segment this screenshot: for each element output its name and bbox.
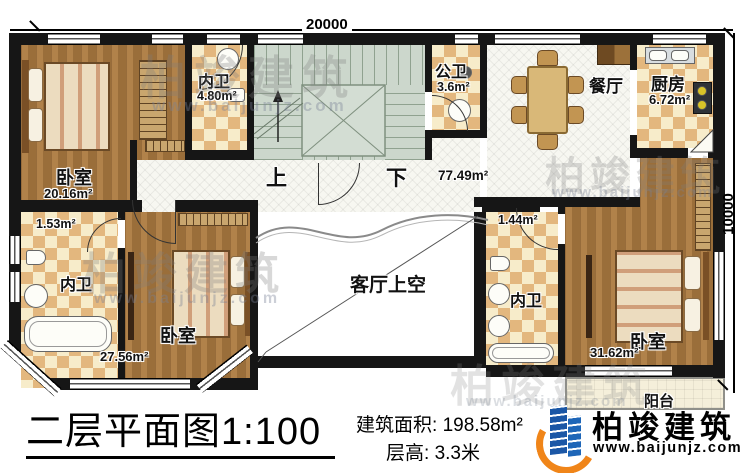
wall-outer-left [9, 33, 21, 352]
bed-bl-pillow [230, 256, 245, 288]
window-top-5 [455, 33, 478, 45]
plan-title: 二层平面图1:100 [26, 400, 321, 455]
dining-table [527, 66, 568, 134]
bath-tl-area: 4.80m² [197, 89, 237, 103]
bedroom-bl-label: 卧室 [160, 322, 196, 348]
dining-chair-l2 [511, 106, 527, 124]
wardrobe-tl-low [145, 140, 185, 152]
window-top-4 [258, 33, 303, 45]
wardrobe-tl [139, 60, 167, 140]
building-area-label: 建筑面积: [356, 415, 437, 436]
dining-chair-l1 [511, 76, 527, 94]
dining-chair-r1 [568, 76, 584, 94]
bed-tl-pillow [28, 68, 43, 102]
window-bottom-bl [70, 378, 190, 390]
bathtub-ml [24, 316, 112, 352]
window-top-3 [207, 33, 240, 45]
tv-stand-br [586, 255, 592, 338]
bath-br-area: 1.44m² [498, 213, 538, 227]
wall-stairs-pubbath-a [425, 33, 432, 92]
wall-bathtl-stairs [247, 33, 254, 160]
bedroom-tl-area: 20.16m² [44, 186, 92, 201]
window-top-7 [653, 33, 706, 45]
bed-br-pillow2 [684, 298, 701, 332]
floor-height-value: 3.3米 [435, 443, 480, 464]
sink-bath-ml [24, 284, 48, 308]
building-area-line: 建筑面积: 198.58m² [356, 410, 523, 437]
window-left-2 [9, 272, 21, 302]
wall-bedtl-bathtl [185, 33, 192, 160]
dimension-right-value: 10000 [720, 179, 738, 249]
bedroom-bl-area: 27.56m² [100, 349, 148, 364]
sink-bath-br [488, 283, 510, 305]
window-top-1 [48, 33, 100, 45]
bath-ml-area: 1.53m² [36, 217, 76, 231]
wall-bathml-b [118, 248, 125, 388]
wall-bathbr-right-a [558, 203, 565, 214]
bath-br-label: 内卫 [510, 287, 542, 311]
bed-bl-pillow2 [230, 294, 245, 326]
wardrobe-bl [178, 213, 248, 226]
floor-height-label: 层高: [386, 443, 429, 464]
window-left-1 [9, 236, 21, 264]
kitchen-area: 6.72m² [649, 92, 690, 107]
dresser-bl [128, 252, 134, 340]
stairs-left-flight [254, 85, 302, 160]
wall-kitchen-bottom-a [630, 148, 688, 158]
window-right-1 [713, 252, 725, 340]
bathtub-br [488, 343, 554, 363]
bath-ml-label: 内卫 [60, 271, 92, 295]
wall-kitchen-bottom-b [708, 148, 713, 158]
stairs-up-label: 上 [266, 162, 287, 192]
wall-void-left [250, 207, 258, 390]
title-underline [26, 456, 335, 459]
wall-hall-bottom-a [9, 200, 142, 212]
floor-height-line: 层高: 3.3米 [386, 438, 480, 465]
dimension-line-top [10, 29, 733, 31]
kitchen-sink-basin [649, 50, 667, 61]
dining-cabinet [597, 42, 632, 65]
public-bath-area: 3.6m² [437, 80, 470, 94]
public-bath-label: 公卫 [435, 58, 467, 82]
sink-bath-br2 [488, 315, 510, 337]
wall-bathtl-bottom [185, 150, 254, 160]
wall-outer-top [9, 33, 725, 45]
kitchen-pass-through [630, 70, 637, 135]
floor-plan-canvas: 卧室 20.16m² 内卫 4.80m² 上 下 77.49m² 公卫 3.6m… [0, 0, 750, 473]
building-area-value: 198.58m² [443, 415, 523, 436]
logo-building-short [568, 415, 581, 457]
logo-building-tall [550, 405, 567, 455]
window-top-6 [495, 33, 580, 45]
hall-area: 77.49m² [438, 168, 488, 183]
brand-website: www.baijunjz.com [593, 440, 742, 456]
stairs-down-label: 下 [386, 162, 407, 192]
window-bottom-br [585, 365, 672, 377]
wall-pubbath-dining [480, 33, 487, 138]
wardrobe-br [695, 163, 711, 251]
dining-chair-r2 [568, 106, 584, 124]
wall-hall-bottom-b [176, 200, 258, 212]
dining-label: 餐厅 [589, 72, 623, 97]
dimension-top-value: 20000 [302, 16, 352, 33]
brand-logo-icon [536, 402, 592, 466]
bedroom-br-area: 31.62m² [590, 345, 638, 360]
toilet-bath-ml [26, 250, 46, 265]
toilet-bath-br [490, 256, 510, 271]
bed-br-headboard [703, 252, 709, 340]
bed-br-pillow [684, 256, 701, 290]
dining-chair-top [537, 50, 558, 66]
wall-void-bottom [250, 356, 486, 368]
stove-burner [697, 86, 707, 96]
kitchen-sink-basin2 [671, 50, 689, 61]
stove-burner2 [697, 100, 707, 110]
living-void-label: 客厅上空 [350, 270, 426, 297]
wall-void-right [474, 212, 486, 360]
bed-tl-pillow2 [28, 108, 43, 142]
wall-pubbath-bottom [425, 130, 487, 138]
window-top-2 [152, 33, 183, 45]
wall-bathbr-right-b [558, 244, 565, 372]
bed-tl [44, 62, 110, 151]
dining-chair-bottom [537, 134, 558, 150]
stairs-right-flight [385, 85, 425, 160]
